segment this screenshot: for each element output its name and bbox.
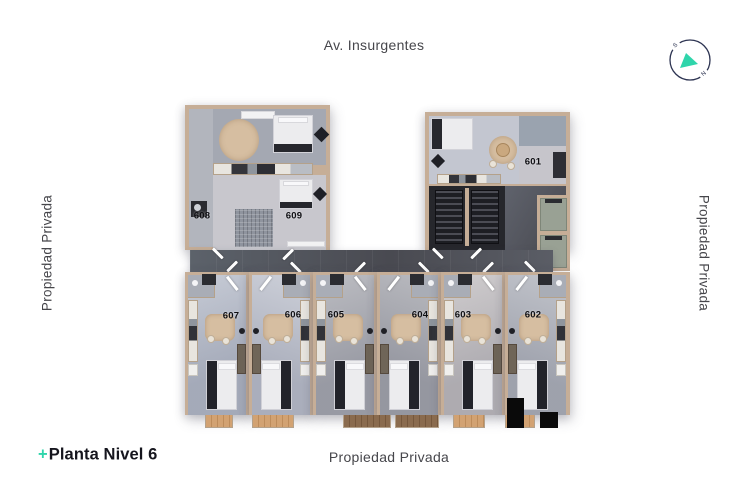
unit-label-607: 607 bbox=[223, 311, 239, 322]
closet-entry bbox=[538, 274, 552, 285]
chair bbox=[268, 337, 276, 345]
chair bbox=[489, 160, 497, 168]
unit-label-608: 608 bbox=[194, 211, 210, 222]
bed bbox=[261, 360, 292, 410]
chair bbox=[463, 335, 471, 343]
fridge bbox=[300, 364, 310, 376]
bed-foot bbox=[280, 202, 312, 208]
pillow bbox=[283, 181, 309, 185]
unit-603 bbox=[441, 272, 505, 415]
chair bbox=[524, 337, 532, 345]
unit-606 bbox=[249, 272, 313, 415]
pillow bbox=[262, 363, 280, 370]
sink bbox=[428, 280, 434, 286]
right-boundary-label: Propiedad Privada bbox=[697, 195, 712, 311]
closet-entry bbox=[410, 274, 424, 285]
sink bbox=[192, 280, 198, 286]
closet-entry bbox=[330, 274, 344, 285]
floor-plan-page: Av. Insurgentes Propiedad Privada Propie… bbox=[0, 0, 749, 500]
room-608-hall-floor bbox=[189, 109, 213, 247]
unit-interior bbox=[505, 272, 569, 415]
fridge bbox=[444, 364, 454, 376]
unit-label-605: 605 bbox=[328, 310, 344, 321]
kitchenette bbox=[188, 300, 198, 362]
roof-patch bbox=[507, 398, 524, 428]
bed-throw bbox=[281, 361, 291, 409]
unit-605 bbox=[313, 272, 377, 415]
unit-interior bbox=[185, 272, 249, 415]
chair bbox=[283, 335, 291, 343]
pouf bbox=[239, 328, 245, 334]
balcony-deck bbox=[395, 415, 439, 428]
unit-604 bbox=[377, 272, 441, 415]
pillow bbox=[346, 363, 364, 370]
roof-patch bbox=[540, 412, 558, 428]
bathroom-601 bbox=[519, 116, 566, 146]
chair bbox=[335, 335, 343, 343]
plus-icon: + bbox=[38, 446, 48, 464]
kitchenette bbox=[556, 300, 566, 362]
chair bbox=[411, 335, 419, 343]
rug-608 bbox=[219, 119, 259, 161]
pouf bbox=[367, 328, 373, 334]
chair bbox=[396, 337, 404, 345]
bed-throw bbox=[463, 361, 473, 409]
bed-609 bbox=[279, 179, 313, 209]
bottom-units-row bbox=[185, 272, 570, 415]
sink bbox=[300, 280, 306, 286]
pillow bbox=[390, 363, 408, 370]
dining-table-601 bbox=[496, 143, 510, 157]
stairwell bbox=[429, 186, 505, 250]
kitchen-601 bbox=[437, 174, 501, 184]
sink bbox=[556, 280, 562, 286]
elevator-door bbox=[545, 236, 563, 240]
pillow bbox=[474, 363, 492, 370]
balcony-deck bbox=[252, 415, 294, 428]
bed bbox=[334, 360, 365, 410]
unit-label-601: 601 bbox=[525, 157, 541, 168]
balcony-deck bbox=[343, 415, 391, 428]
bed bbox=[462, 360, 493, 410]
unit-interior bbox=[249, 272, 313, 415]
unit-label-606: 606 bbox=[285, 310, 301, 321]
wardrobe bbox=[508, 344, 517, 374]
fridge bbox=[428, 364, 438, 376]
sink bbox=[448, 280, 454, 286]
unit-607 bbox=[185, 272, 249, 415]
bottom-boundary-label: Propiedad Privada bbox=[329, 449, 449, 465]
kitchenette bbox=[428, 300, 438, 362]
bed-throw bbox=[335, 361, 345, 409]
pouf bbox=[509, 328, 515, 334]
kitchenette bbox=[300, 300, 310, 362]
unit-label-609: 609 bbox=[286, 211, 302, 222]
kitchenette bbox=[316, 300, 326, 362]
pouf bbox=[253, 328, 259, 334]
sink bbox=[320, 280, 326, 286]
bed-throw bbox=[537, 361, 547, 409]
corridor bbox=[190, 250, 553, 272]
stair-divider bbox=[465, 188, 469, 246]
chair bbox=[478, 337, 486, 345]
closet-entry bbox=[202, 274, 216, 285]
fridge bbox=[556, 364, 566, 376]
unit-interior bbox=[377, 272, 441, 415]
chair bbox=[222, 337, 230, 345]
pouf bbox=[381, 328, 387, 334]
wardrobe-601 bbox=[553, 152, 566, 178]
pillow bbox=[278, 117, 308, 123]
plan-title: +Planta Nivel 6 bbox=[38, 446, 157, 465]
kitchenette bbox=[444, 300, 454, 362]
chair bbox=[507, 162, 515, 170]
bed bbox=[206, 360, 237, 410]
bed-throw bbox=[207, 361, 217, 409]
unit-label-603: 603 bbox=[455, 310, 471, 321]
pillow bbox=[518, 363, 536, 370]
street-label: Av. Insurgentes bbox=[324, 37, 424, 53]
bed-foot bbox=[274, 144, 312, 152]
fridge bbox=[316, 364, 326, 376]
building-plan: 601 602 603 604 605 606 607 608 609 bbox=[185, 100, 570, 430]
bed-throw bbox=[409, 361, 419, 409]
pillow bbox=[218, 363, 236, 370]
balcony-deck bbox=[205, 415, 233, 428]
closet-entry bbox=[458, 274, 472, 285]
compass-needle-icon bbox=[680, 53, 698, 68]
elevator-door bbox=[545, 199, 563, 203]
stair-flight bbox=[435, 190, 463, 244]
block-units-608-609 bbox=[185, 105, 330, 250]
chair bbox=[207, 335, 215, 343]
fridge bbox=[188, 364, 198, 376]
pouf bbox=[495, 328, 501, 334]
elevator bbox=[540, 198, 567, 231]
wardrobe bbox=[493, 344, 502, 374]
console-609 bbox=[287, 241, 325, 247]
wardrobe bbox=[380, 344, 389, 374]
unit-label-602: 602 bbox=[525, 310, 541, 321]
sofa-608 bbox=[241, 111, 275, 119]
unit-label-604: 604 bbox=[412, 310, 428, 321]
unit-interior bbox=[441, 272, 505, 415]
plan-title-text: Planta Nivel 6 bbox=[49, 446, 158, 464]
unit-602 bbox=[505, 272, 570, 415]
bed bbox=[389, 360, 420, 410]
stair-flight bbox=[471, 190, 499, 244]
bathroom-609 bbox=[235, 209, 273, 247]
bed-601 bbox=[431, 118, 473, 150]
bed-608 bbox=[273, 115, 313, 153]
closet-entry bbox=[282, 274, 296, 285]
left-boundary-label: Propiedad Privada bbox=[40, 195, 55, 311]
wardrobe bbox=[237, 344, 246, 374]
chair bbox=[539, 335, 547, 343]
kitchen-608 bbox=[213, 163, 313, 175]
wardrobe bbox=[252, 344, 261, 374]
wardrobe bbox=[365, 344, 374, 374]
bed-head bbox=[432, 119, 442, 149]
balcony-deck bbox=[453, 415, 485, 428]
chair bbox=[350, 337, 358, 345]
unit-interior bbox=[313, 272, 377, 415]
compass-icon: S N bbox=[664, 34, 716, 86]
